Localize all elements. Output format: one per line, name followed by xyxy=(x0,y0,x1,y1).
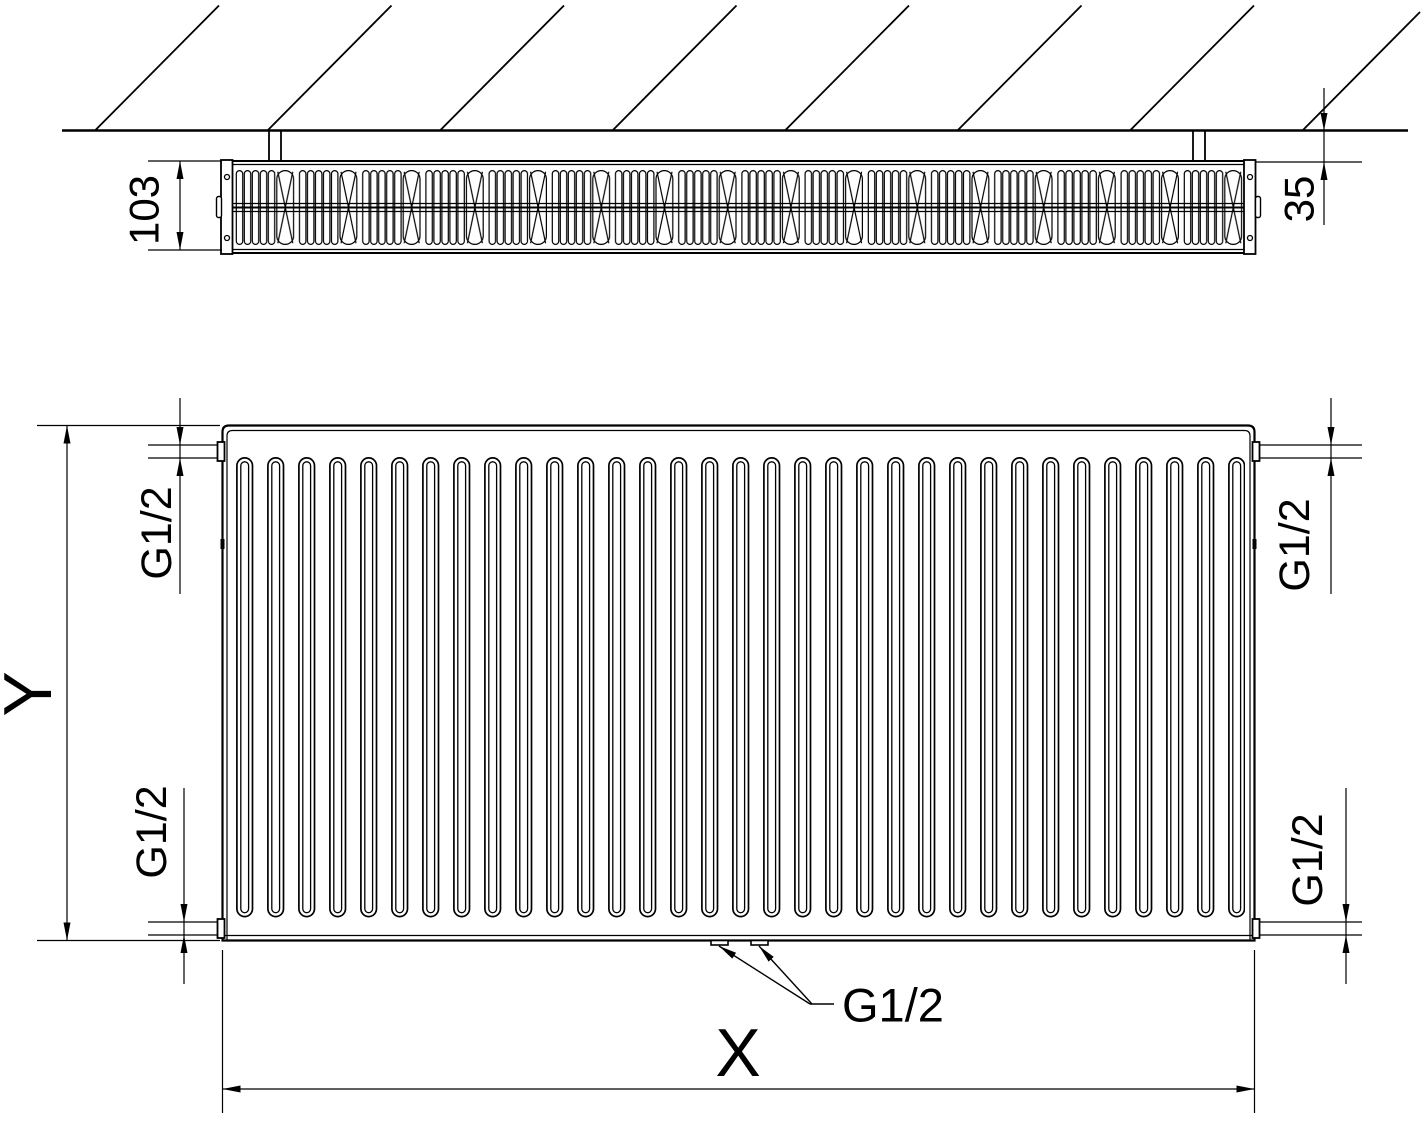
dimension-thread-top-left: G1/2 xyxy=(133,398,184,594)
connection-stub-bottom-left xyxy=(148,919,225,938)
side-tab-right xyxy=(1256,197,1261,218)
dimension-thread-top-right: G1/2 xyxy=(1271,398,1335,594)
front-panel-channels xyxy=(236,457,1245,918)
thread-label-top-left: G1/2 xyxy=(133,486,181,579)
dim-width-label: X xyxy=(715,1015,760,1091)
side-tab-left xyxy=(217,197,222,218)
thread-label-bottom-center: G1/2 xyxy=(842,979,944,1032)
dimension-height: Y xyxy=(0,426,220,941)
dimension-thread-bottom-right: G1/2 xyxy=(1284,788,1350,984)
dimension-gap: 35 xyxy=(1256,88,1362,225)
front-view: Y G1/2 G1/2 G1/2 G1/2 xyxy=(0,398,1362,1113)
dim-height-label: Y xyxy=(0,671,66,716)
thread-label-bottom-right: G1/2 xyxy=(1284,813,1332,906)
connection-stub-top-right xyxy=(1253,442,1363,461)
dimension-width: X xyxy=(223,950,1255,1113)
radiator-technical-drawing-page: 103 35 xyxy=(0,0,1425,1131)
radiator-top-view-body xyxy=(217,160,1261,254)
mounting-bracket-left xyxy=(269,132,281,162)
dimension-thread-bottom-left: G1/2 xyxy=(128,785,188,984)
connection-stub-top-left xyxy=(148,442,225,461)
wall-hatching xyxy=(95,6,1420,131)
thread-label-top-right: G1/2 xyxy=(1271,498,1319,591)
dimension-depth: 103 xyxy=(121,161,223,250)
top-view: 103 35 xyxy=(62,6,1420,255)
technical-drawing: 103 35 xyxy=(0,0,1425,1131)
thread-label-bottom-left: G1/2 xyxy=(128,785,176,878)
dim-depth-label: 103 xyxy=(121,175,168,245)
dim-gap-label: 35 xyxy=(1276,176,1323,223)
mounting-bracket-right xyxy=(1193,132,1205,162)
